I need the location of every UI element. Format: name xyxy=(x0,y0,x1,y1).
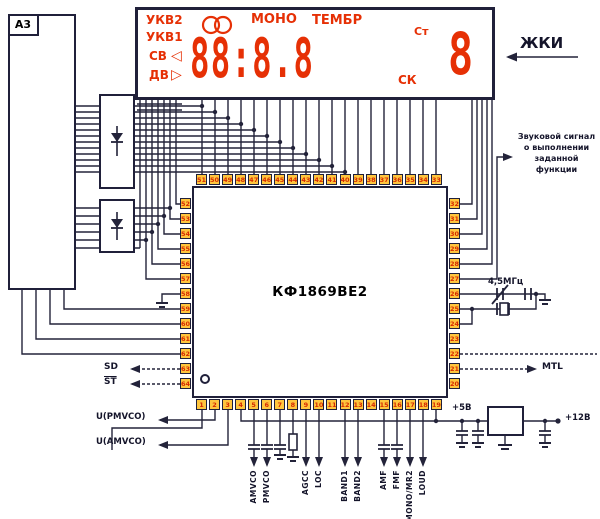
ic-pin: 15 xyxy=(379,399,390,410)
signal-agcc-label: AGCC xyxy=(301,470,310,495)
ic-pin: 45 xyxy=(274,174,285,185)
ic-pin: 22 xyxy=(449,348,460,359)
mtl-label: MTL xyxy=(542,362,563,372)
mono-indicator: МОНО xyxy=(251,12,297,27)
ic-pin: 26 xyxy=(449,288,460,299)
ic-pins-bottom: 12345678910111213141516171819 xyxy=(196,399,442,410)
st-indicator: Ст xyxy=(414,25,428,38)
ic-pin: 43 xyxy=(300,174,311,185)
ic-pin: 42 xyxy=(313,174,324,185)
triangle-right-icon: ▷ xyxy=(171,68,182,82)
ic-pin: 40 xyxy=(340,174,351,185)
signal-pmvco-label: PMVCO xyxy=(262,470,271,503)
ic-pin: 30 xyxy=(449,228,460,239)
ic-pin: 3 xyxy=(222,399,233,410)
ic-pin: 38 xyxy=(366,174,377,185)
ic-pins-top: 51504948474645444342414039383736353433 xyxy=(196,174,442,185)
ic-name-label: КФ1869ВЕ2 xyxy=(272,284,367,300)
ic-pin: 47 xyxy=(248,174,259,185)
signal-amf-label: AMF xyxy=(379,470,388,490)
sound-signal-line: Звуковой сигнал xyxy=(513,131,600,142)
ic-pins-left: 52535455565758596061626364 xyxy=(180,198,191,389)
ic-pin: 18 xyxy=(418,399,429,410)
module-a3-block: А3 xyxy=(8,14,76,290)
ic-pin: 44 xyxy=(287,174,298,185)
tembr-indicator: ТЕМБР xyxy=(312,13,362,28)
ic-pin: 21 xyxy=(449,363,460,374)
ic-pin: 37 xyxy=(379,174,390,185)
plus12v-label: +12В xyxy=(565,413,590,423)
signal-monomr2-label: MONO/MR2 xyxy=(405,470,414,519)
ic-pin: 29 xyxy=(449,243,460,254)
ic-pin: 12 xyxy=(340,399,351,410)
diode-box-1 xyxy=(100,95,134,188)
ic-pin: 49 xyxy=(222,174,233,185)
ic-pin: 60 xyxy=(180,318,191,329)
ic-pin: 55 xyxy=(180,243,191,254)
ic-pin: 59 xyxy=(180,303,191,314)
ic-pin: 31 xyxy=(449,213,460,224)
ic-pin: 8 xyxy=(287,399,298,410)
plus12-terminal xyxy=(555,418,560,423)
ic-pin: 5 xyxy=(248,399,259,410)
ic-pin: 33 xyxy=(431,174,442,185)
crystal-frequency-label: 4,5МГц xyxy=(488,277,523,287)
lcd-display: УКВ2 УКВ1 СВ ДВ ◁ ▷ МОНО ТЕМБР Ст СК 88:… xyxy=(135,7,495,100)
ic-pin: 51 xyxy=(196,174,207,185)
schematic-page: А3 УКВ2 УКВ1 СВ ДВ ◁ ▷ МОНО ТЕМБР Ст СК … xyxy=(0,0,600,519)
resistor-symbol xyxy=(289,434,297,450)
ic-pin: 63 xyxy=(180,363,191,374)
sk-indicator: СК xyxy=(398,73,417,87)
seven-segment-digits: 88:8.8 xyxy=(190,27,314,90)
ic-pin: 52 xyxy=(180,198,191,209)
ic-pin: 27 xyxy=(449,273,460,284)
ic-pin: 46 xyxy=(261,174,272,185)
st-label: ST xyxy=(104,377,117,387)
ic-pin: 32 xyxy=(449,198,460,209)
band-ukv2-label: УКВ2 xyxy=(146,13,183,27)
voltage-regulator-block xyxy=(487,406,524,436)
ic-pin: 41 xyxy=(326,174,337,185)
sound-signal-line: заданной функции xyxy=(513,153,600,175)
ic-pin: 16 xyxy=(392,399,403,410)
seven-segment-digit-right: 8 xyxy=(448,20,473,88)
ic-pin: 23 xyxy=(449,333,460,344)
u-amvco-label: U(AMVCO) xyxy=(96,437,146,447)
u-pmvco-label: U(PMVCO) xyxy=(96,412,145,422)
ic-pin: 48 xyxy=(235,174,246,185)
module-a3-label: А3 xyxy=(8,14,39,36)
band-dv-label: ДВ xyxy=(149,68,169,82)
ic-pin: 13 xyxy=(353,399,364,410)
signal-fmf-label: FMF xyxy=(392,470,401,489)
ic-pin: 19 xyxy=(431,399,442,410)
sound-arrow-icon xyxy=(503,153,513,161)
ic-pin: 58 xyxy=(180,288,191,299)
ic-pin: 10 xyxy=(313,399,324,410)
ic-pin: 54 xyxy=(180,228,191,239)
signal-band1-label: BAND1 xyxy=(340,470,349,502)
triangle-left-icon: ◁ xyxy=(171,49,182,63)
ic-pins-right: 32313029282726252423222120 xyxy=(449,198,460,389)
ic-pin: 25 xyxy=(449,303,460,314)
plus5v-label: +5В xyxy=(452,403,472,413)
sd-label: SD xyxy=(104,362,118,372)
ic-pin: 9 xyxy=(300,399,311,410)
ic-pin: 28 xyxy=(449,258,460,269)
diode-box-2 xyxy=(100,200,134,252)
band-sv-label: СВ xyxy=(149,49,167,63)
sound-signal-note: Звуковой сигнал о выполнении заданной фу… xyxy=(513,131,600,175)
ic-pin: 53 xyxy=(180,213,191,224)
signal-loc-label: LOC xyxy=(314,470,323,488)
crystal-symbol xyxy=(500,303,508,315)
ic-kf1869ve2: КФ1869ВЕ2 xyxy=(192,186,448,398)
ic-pin: 20 xyxy=(449,378,460,389)
ic-pin: 7 xyxy=(274,399,285,410)
ic-pin: 2 xyxy=(209,399,220,410)
ic-pin: 24 xyxy=(449,318,460,329)
ic-pin: 62 xyxy=(180,348,191,359)
ic-pin: 50 xyxy=(209,174,220,185)
pin1-marker-icon xyxy=(200,374,210,384)
ic-pin: 56 xyxy=(180,258,191,269)
band-ukv1-label: УКВ1 xyxy=(146,30,183,44)
signal-band2-label: BAND2 xyxy=(353,470,362,502)
ic-pin: 35 xyxy=(405,174,416,185)
ic-pin: 17 xyxy=(405,399,416,410)
mtl-arrow-icon xyxy=(527,365,537,373)
sound-signal-line: о выполнении xyxy=(513,142,600,153)
ic-pin: 34 xyxy=(418,174,429,185)
signal-loud-label: LOUD xyxy=(418,470,427,495)
ic-pin: 1 xyxy=(196,399,207,410)
ic-pin: 36 xyxy=(392,174,403,185)
ic-pin: 64 xyxy=(180,378,191,389)
signal-amvco-label: AMVCO xyxy=(249,470,258,503)
ic-pin: 39 xyxy=(353,174,364,185)
ic-pin: 61 xyxy=(180,333,191,344)
ic-pin: 11 xyxy=(326,399,337,410)
ic-pin: 6 xyxy=(261,399,272,410)
ic-pin: 4 xyxy=(235,399,246,410)
ic-pin: 14 xyxy=(366,399,377,410)
lcd-label: ЖКИ xyxy=(520,34,563,52)
lcd-arrow-icon xyxy=(506,53,517,62)
ic-pin: 57 xyxy=(180,273,191,284)
